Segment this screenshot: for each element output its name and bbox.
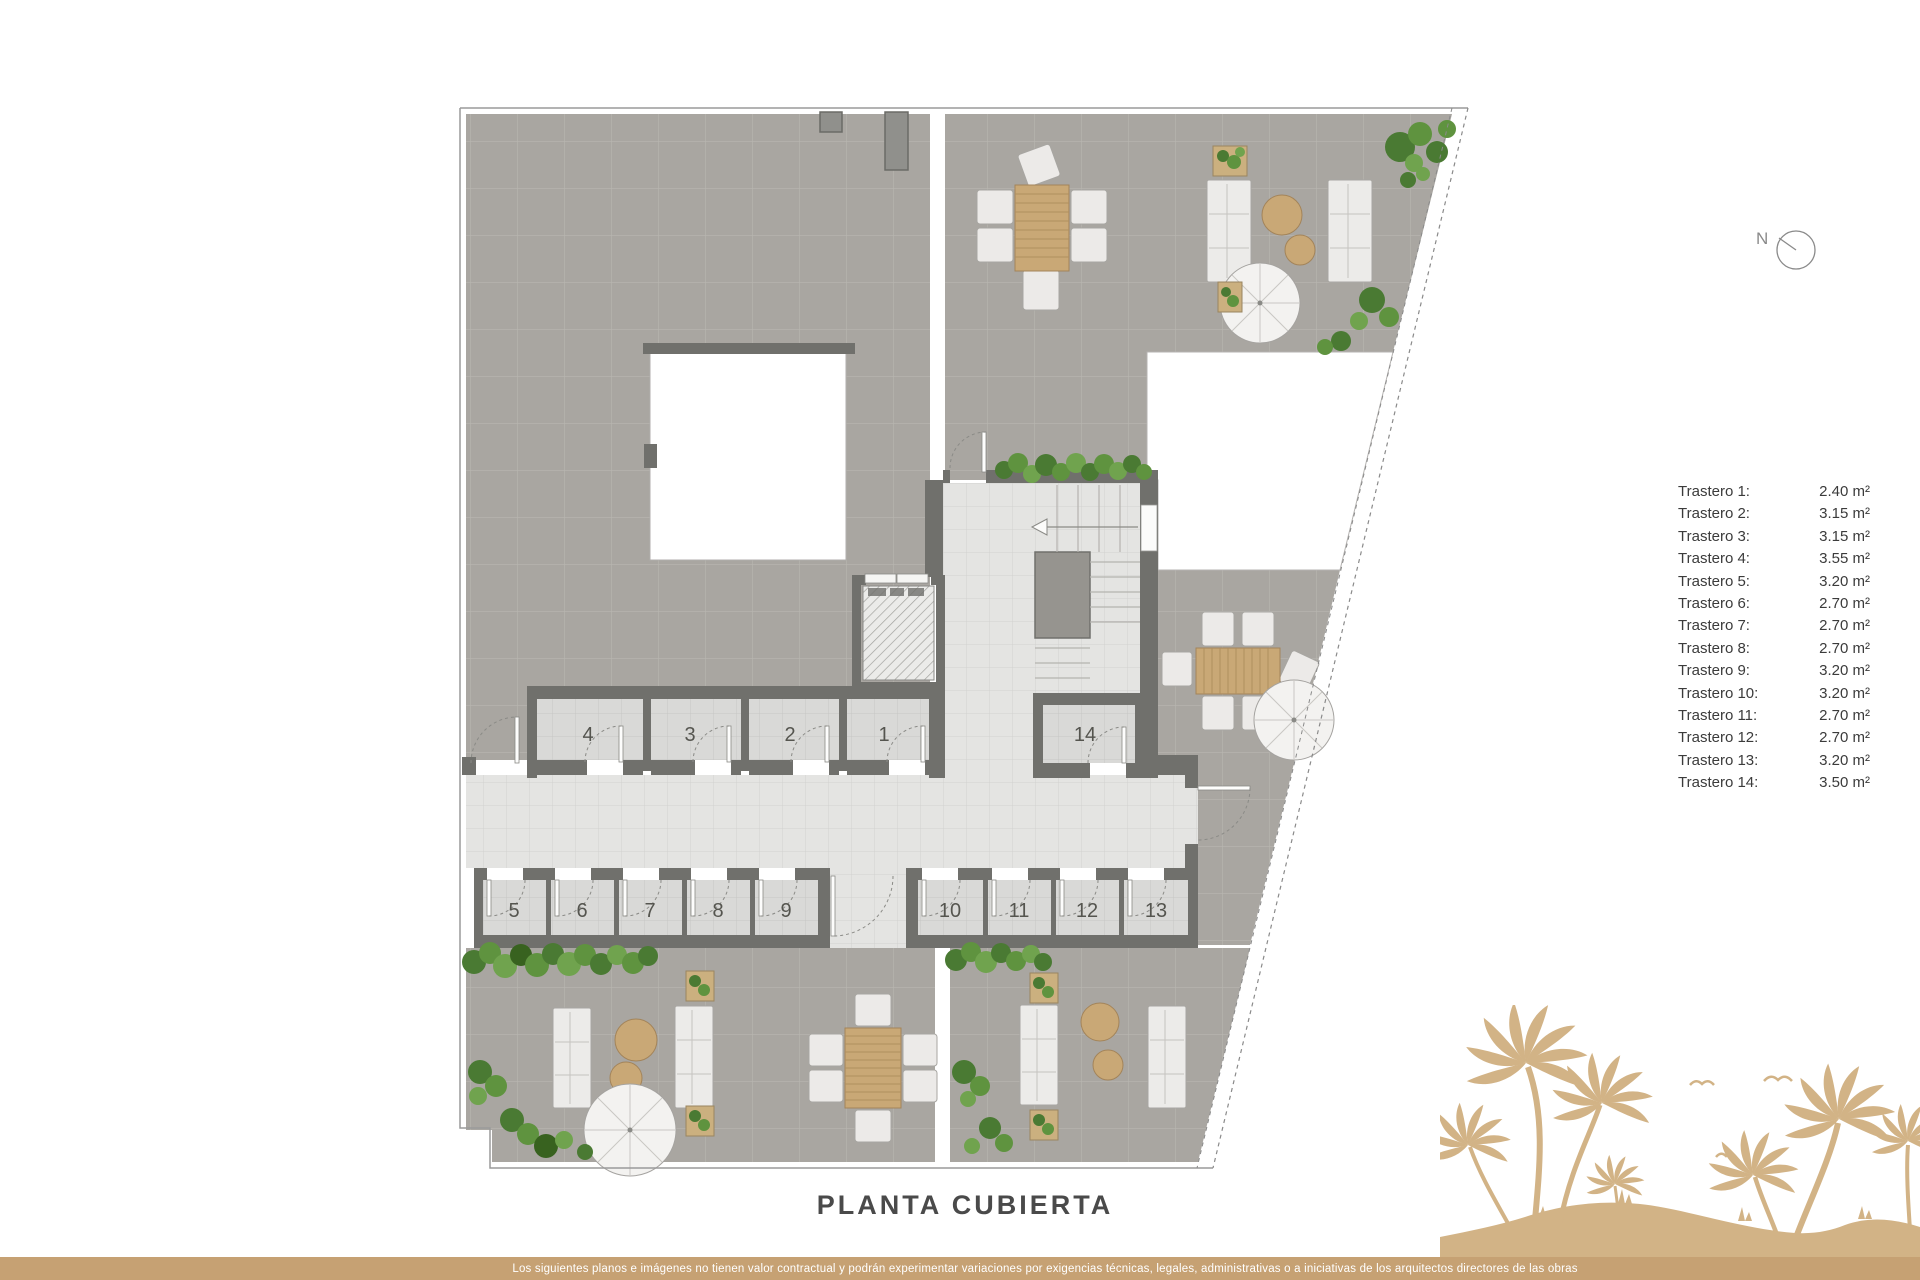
legend-label: Trastero 7: xyxy=(1678,615,1750,637)
sofa xyxy=(1020,1005,1058,1105)
grass-tuft xyxy=(1738,1207,1752,1221)
chair xyxy=(809,1034,843,1066)
chimney-tall xyxy=(885,112,908,170)
page-title: PLANTA CUBIERTA xyxy=(800,1190,1130,1221)
chair xyxy=(1242,612,1274,646)
grass-tuft xyxy=(1858,1206,1872,1219)
dining-table xyxy=(1196,648,1280,694)
grass-tuft xyxy=(1618,1189,1632,1204)
legend-area: 3.50 m² xyxy=(1819,772,1870,794)
room-number-5: 5 xyxy=(508,900,519,922)
legend-label: Trastero 6: xyxy=(1678,593,1750,615)
chair xyxy=(977,228,1013,262)
sofa xyxy=(1328,180,1372,282)
room-number-14: 14 xyxy=(1074,724,1096,746)
legend-label: Trastero 14: xyxy=(1678,772,1758,794)
floor-plan: 1 2 3 4 5 6 7 8 9 10 11 12 13 14 xyxy=(440,90,1500,1200)
legend-area: 3.20 m² xyxy=(1819,683,1870,705)
chair xyxy=(977,190,1013,224)
room-number-10: 10 xyxy=(939,900,961,922)
page: 1 2 3 4 5 6 7 8 9 10 11 12 13 14 xyxy=(0,0,1920,1280)
planter xyxy=(1030,1110,1058,1140)
legend-area: 3.20 m² xyxy=(1819,750,1870,772)
chair xyxy=(809,1070,843,1102)
legend-row: Trastero 6:2.70 m² xyxy=(1678,593,1870,615)
north-compass: N xyxy=(1742,210,1832,280)
terrace-east-strip xyxy=(1198,755,1296,945)
sofa xyxy=(1148,1006,1186,1108)
legend-area: 3.15 m² xyxy=(1819,526,1870,548)
planter xyxy=(1213,146,1247,176)
stair-landing xyxy=(1035,552,1090,638)
sofa xyxy=(675,1006,713,1108)
chair xyxy=(855,1110,891,1142)
legend-area: 2.40 m² xyxy=(1819,481,1870,503)
chair xyxy=(1023,270,1059,310)
stair-window xyxy=(1141,505,1157,551)
legend-label: Trastero 12: xyxy=(1678,727,1758,749)
terrace-divider xyxy=(930,114,944,483)
void-left xyxy=(650,352,846,560)
parasol xyxy=(1254,680,1334,760)
palm-crown xyxy=(1551,1053,1653,1134)
legend-row: Trastero 8:2.70 m² xyxy=(1678,638,1870,660)
round-table xyxy=(1081,1003,1119,1041)
legend-row: Trastero 13:3.20 m² xyxy=(1678,750,1870,772)
legend-row: Trastero 11:2.70 m² xyxy=(1678,705,1870,727)
legend-label: Trastero 2: xyxy=(1678,503,1750,525)
room-number-3: 3 xyxy=(684,724,695,746)
room-number-1: 1 xyxy=(878,724,889,746)
planter xyxy=(1030,973,1058,1003)
room-number-13: 13 xyxy=(1145,900,1167,922)
legend-area: 3.55 m² xyxy=(1819,548,1870,570)
round-table xyxy=(1262,195,1302,235)
legend-label: Trastero 8: xyxy=(1678,638,1750,660)
round-table xyxy=(1285,235,1315,265)
legend-area: 3.15 m² xyxy=(1819,503,1870,525)
legend-area: 2.70 m² xyxy=(1819,615,1870,637)
legend-label: Trastero 3: xyxy=(1678,526,1750,548)
legend-row: Trastero 14:3.50 m² xyxy=(1678,772,1870,794)
room-number-6: 6 xyxy=(576,900,587,922)
legend-area: 2.70 m² xyxy=(1819,638,1870,660)
chair xyxy=(903,1034,937,1066)
dining-table xyxy=(1015,185,1069,271)
room-number-12: 12 xyxy=(1076,900,1098,922)
legend-row: Trastero 9:3.20 m² xyxy=(1678,660,1870,682)
disclaimer-bar: Los siguientes planos e imágenes no tien… xyxy=(0,1257,1920,1280)
legend-label: Trastero 10: xyxy=(1678,683,1758,705)
legend-label: Trastero 13: xyxy=(1678,750,1758,772)
chair xyxy=(1202,696,1234,730)
disclaimer-text: Los siguientes planos e imágenes no tien… xyxy=(512,1263,1577,1275)
chair xyxy=(1071,190,1107,224)
chair xyxy=(855,994,891,1026)
parasol xyxy=(584,1084,676,1176)
legend-label: Trastero 4: xyxy=(1678,548,1750,570)
sofa xyxy=(553,1008,591,1108)
palm-crown xyxy=(1464,1005,1588,1100)
lobby-corridor xyxy=(943,483,1033,775)
chair xyxy=(1071,228,1107,262)
room-number-9: 9 xyxy=(780,900,791,922)
legend-label: Trastero 5: xyxy=(1678,571,1750,593)
legend-row: Trastero 3:3.15 m² xyxy=(1678,526,1870,548)
legend-row: Trastero 7:2.70 m² xyxy=(1678,615,1870,637)
legend-area: 2.70 m² xyxy=(1819,727,1870,749)
void-right xyxy=(1147,352,1393,570)
chair xyxy=(903,1070,937,1102)
chimney-small xyxy=(820,112,842,132)
passage-floor xyxy=(830,868,906,948)
round-table xyxy=(1093,1050,1123,1080)
room-number-8: 8 xyxy=(712,900,723,922)
palm-crown xyxy=(1783,1063,1896,1152)
storage-corridor xyxy=(466,775,1198,868)
bird-icon xyxy=(1690,1081,1714,1085)
palm-silhouette xyxy=(1440,1005,1920,1258)
palm-decoration xyxy=(1440,1005,1920,1258)
legend-row: Trastero 1:2.40 m² xyxy=(1678,481,1870,503)
north-label: N xyxy=(1756,229,1768,248)
planter xyxy=(1218,282,1242,312)
legend-area: 2.70 m² xyxy=(1819,593,1870,615)
room-number-7: 7 xyxy=(644,900,655,922)
legend-area: 3.20 m² xyxy=(1819,571,1870,593)
legend-label: Trastero 9: xyxy=(1678,660,1750,682)
planter xyxy=(686,1106,714,1136)
palm-crown xyxy=(1707,1130,1798,1202)
legend-area: 2.70 m² xyxy=(1819,705,1870,727)
elevator-door xyxy=(897,574,928,583)
chair xyxy=(1162,652,1192,686)
legend-row: Trastero 10:3.20 m² xyxy=(1678,683,1870,705)
sand-mound xyxy=(1440,1203,1920,1258)
legend-row: Trastero 4:3.55 m² xyxy=(1678,548,1870,570)
legend-label: Trastero 11: xyxy=(1678,705,1757,727)
room-number-2: 2 xyxy=(784,724,795,746)
legend-row: Trastero 5:3.20 m² xyxy=(1678,571,1870,593)
bird-icon xyxy=(1764,1077,1792,1081)
room-number-11: 11 xyxy=(1009,900,1030,922)
legend-row: Trastero 12:2.70 m² xyxy=(1678,727,1870,749)
elevator-door xyxy=(865,574,896,583)
chair xyxy=(1202,612,1234,646)
planter xyxy=(686,971,714,1001)
legend-area: 3.20 m² xyxy=(1819,660,1870,682)
elevator xyxy=(863,574,934,680)
round-table xyxy=(615,1019,657,1061)
legend-label: Trastero 1: xyxy=(1678,481,1750,503)
storage-legend: Trastero 1:2.40 m² Trastero 2:3.15 m² Tr… xyxy=(1678,481,1870,795)
elevator-car xyxy=(863,586,934,680)
room-number-4: 4 xyxy=(582,724,593,746)
legend-row: Trastero 2:3.15 m² xyxy=(1678,503,1870,525)
